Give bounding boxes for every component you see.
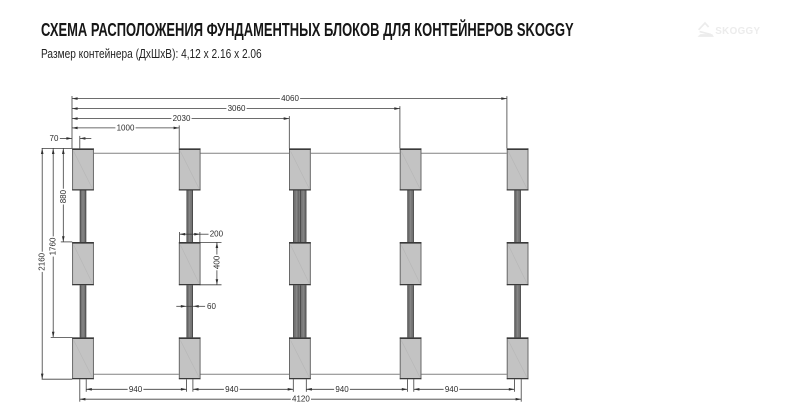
svg-text:2160: 2160: [38, 252, 47, 270]
svg-text:940: 940: [335, 385, 349, 394]
svg-text:4120: 4120: [292, 395, 310, 404]
svg-text:2030: 2030: [173, 114, 191, 123]
svg-text:940: 940: [445, 385, 459, 394]
svg-text:880: 880: [59, 189, 68, 203]
svg-text:200: 200: [210, 230, 224, 239]
svg-text:3060: 3060: [228, 104, 246, 113]
svg-text:400: 400: [212, 255, 221, 269]
svg-text:4060: 4060: [281, 94, 299, 103]
svg-text:940: 940: [129, 385, 143, 394]
svg-text:60: 60: [207, 302, 216, 311]
svg-text:70: 70: [50, 134, 59, 143]
svg-text:1000: 1000: [117, 123, 135, 132]
svg-text:940: 940: [225, 385, 239, 394]
svg-text:1760: 1760: [49, 237, 58, 255]
